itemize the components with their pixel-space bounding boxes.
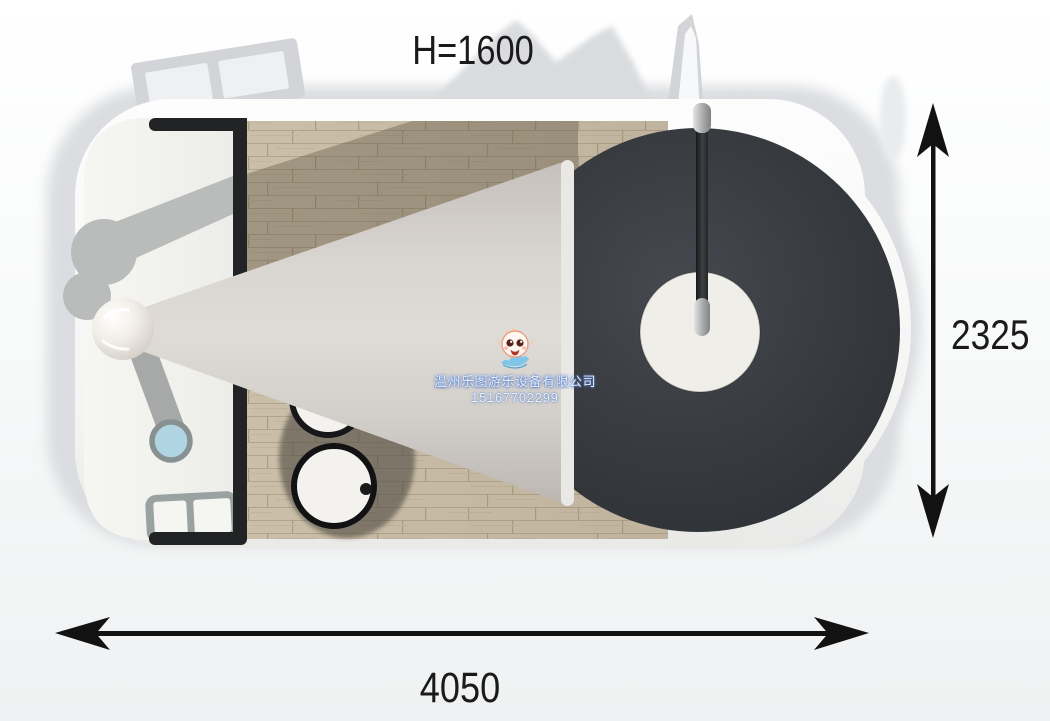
play-structure-plan-illustration bbox=[0, 0, 1050, 721]
horizontal-dimension-arrow bbox=[55, 617, 869, 650]
blue-seat bbox=[152, 422, 190, 460]
cone-rim bbox=[561, 160, 574, 506]
width-dimension-label: 4050 bbox=[397, 664, 523, 713]
stool-bottom bbox=[294, 446, 374, 526]
depth-dimension-label: 2325 bbox=[951, 311, 1029, 359]
cone-slide-ball bbox=[92, 298, 154, 360]
stool-hole bbox=[360, 483, 372, 495]
plan-drawing-canvas: H=1600 2325 4050 温州乐图游乐设备有限公司 1516770229… bbox=[0, 0, 1050, 721]
vertical-dimension-arrow bbox=[917, 103, 949, 538]
height-dimension-label: H=1600 bbox=[402, 27, 545, 74]
